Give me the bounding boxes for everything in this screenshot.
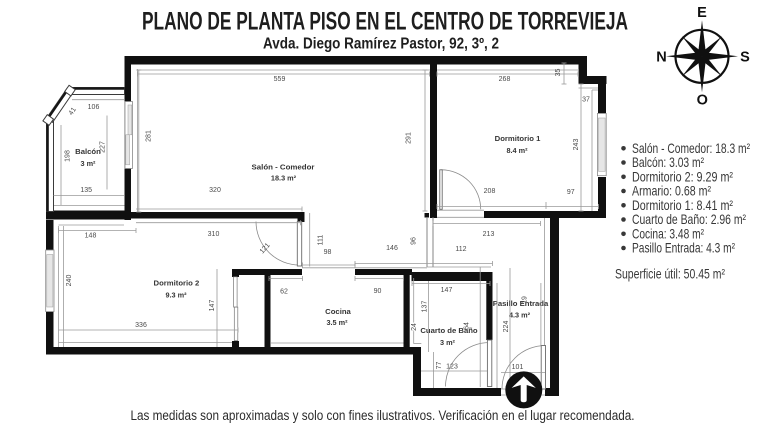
svg-text:106: 106 xyxy=(88,104,100,111)
svg-text:224: 224 xyxy=(503,321,510,333)
svg-text:62: 62 xyxy=(280,289,288,296)
svg-text:Pasillo Entrada: 4.3 m²: Pasillo Entrada: 4.3 m² xyxy=(632,240,735,256)
svg-text:37: 37 xyxy=(582,97,590,104)
svg-text:123: 123 xyxy=(446,364,458,371)
svg-text:135: 135 xyxy=(80,187,92,194)
svg-text:336: 336 xyxy=(135,322,147,329)
svg-text:PLANO DE PLANTA PISO EN EL CEN: PLANO DE PLANTA PISO EN EL CENTRO DE TOR… xyxy=(142,8,628,36)
svg-text:Dormitorio 2: Dormitorio 2 xyxy=(154,279,200,288)
svg-text:35: 35 xyxy=(555,69,562,77)
svg-text:243: 243 xyxy=(573,139,580,151)
svg-text:291: 291 xyxy=(406,132,413,144)
svg-text:559: 559 xyxy=(274,76,286,83)
svg-text:208: 208 xyxy=(484,188,496,195)
svg-text:19: 19 xyxy=(522,296,529,304)
svg-text:98: 98 xyxy=(324,249,332,256)
svg-text:112: 112 xyxy=(455,246,466,253)
svg-text:227: 227 xyxy=(100,141,107,153)
svg-text:281: 281 xyxy=(145,130,152,142)
svg-text:3 m²: 3 m² xyxy=(440,338,456,347)
svg-text:9.3 m²: 9.3 m² xyxy=(165,291,187,300)
svg-text:213: 213 xyxy=(483,231,495,238)
svg-text:E: E xyxy=(697,5,707,21)
svg-text:Las medidas son aproximadas y: Las medidas son aproximadas y solo con f… xyxy=(131,408,635,424)
svg-text:101: 101 xyxy=(512,364,524,371)
svg-text:Balcón: Balcón xyxy=(75,147,101,156)
svg-text:O: O xyxy=(697,93,708,109)
svg-text:4.3 m²: 4.3 m² xyxy=(509,311,531,320)
svg-text:310: 310 xyxy=(208,231,220,238)
svg-text:240: 240 xyxy=(66,275,73,287)
svg-text:N: N xyxy=(656,50,666,66)
svg-text:24: 24 xyxy=(411,323,418,331)
svg-text:Superficie útil: 50.45 m²: Superficie útil: 50.45 m² xyxy=(615,265,725,281)
svg-text:90: 90 xyxy=(374,288,382,295)
svg-text:Cocina: Cocina xyxy=(325,307,351,316)
svg-text:3.5 m²: 3.5 m² xyxy=(326,318,348,327)
svg-text:147: 147 xyxy=(441,287,453,294)
svg-text:64: 64 xyxy=(464,322,471,330)
svg-text:147: 147 xyxy=(209,300,216,312)
svg-text:198: 198 xyxy=(64,150,71,162)
svg-text:8.4 m²: 8.4 m² xyxy=(506,146,528,155)
svg-text:Dormitorio 1: Dormitorio 1 xyxy=(495,134,541,143)
svg-text:111: 111 xyxy=(318,235,325,246)
svg-text:Avda. Diego Ramírez Pastor, 92: Avda. Diego Ramírez Pastor, 92, 3º, 2 xyxy=(263,36,499,53)
svg-text:268: 268 xyxy=(499,76,511,83)
svg-text:148: 148 xyxy=(85,233,97,240)
svg-text:18.3 m²: 18.3 m² xyxy=(271,174,297,183)
svg-text:320: 320 xyxy=(209,187,221,194)
svg-text:137: 137 xyxy=(422,301,429,313)
svg-text:Salón - Comedor: Salón - Comedor xyxy=(252,163,315,172)
svg-text:96: 96 xyxy=(411,237,418,245)
svg-text:77: 77 xyxy=(436,362,443,370)
svg-text:3 m²: 3 m² xyxy=(80,159,96,168)
svg-text:S: S xyxy=(740,50,750,66)
svg-text:97: 97 xyxy=(567,189,575,196)
svg-text:146: 146 xyxy=(386,245,398,252)
